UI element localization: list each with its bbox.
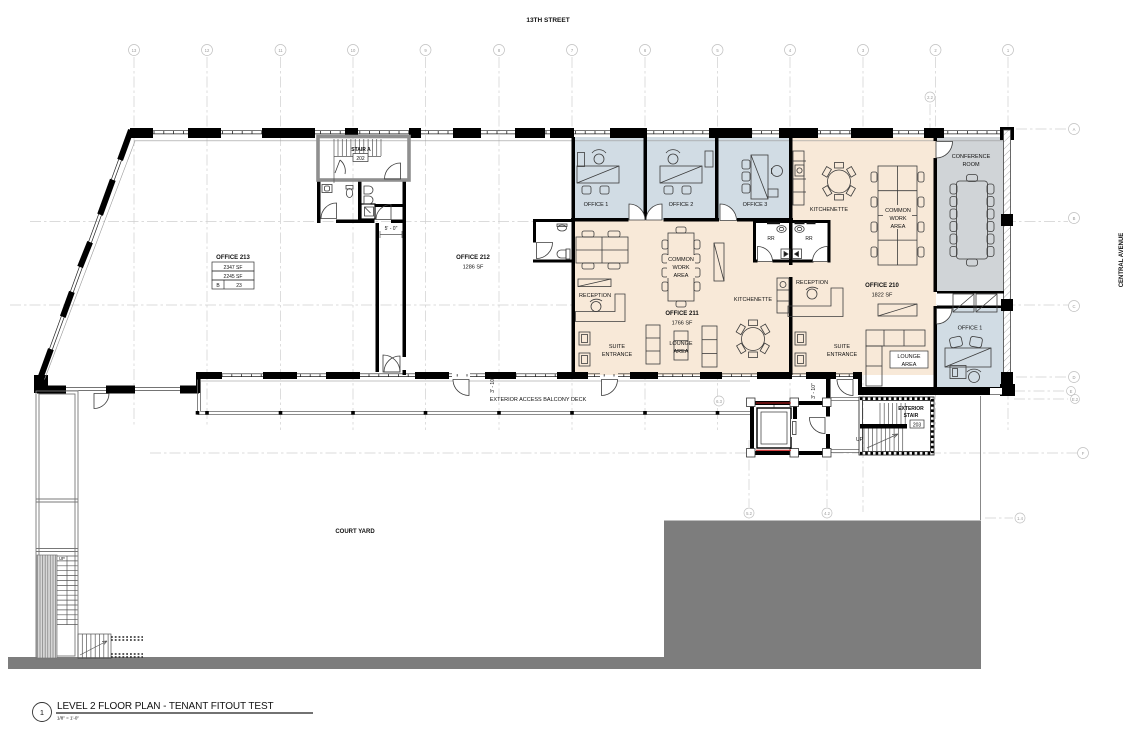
svg-text:3' - 10": 3' - 10" bbox=[811, 383, 817, 399]
svg-text:1766 SF: 1766 SF bbox=[672, 321, 693, 327]
svg-text:12: 12 bbox=[205, 48, 210, 53]
svg-text:STAIR: STAIR bbox=[904, 413, 919, 419]
svg-text:OFFICE 212: OFFICE 212 bbox=[456, 255, 490, 261]
svg-text:OFFICE 1: OFFICE 1 bbox=[958, 326, 983, 332]
svg-text:1/8" = 1'-0": 1/8" = 1'-0" bbox=[57, 716, 79, 721]
svg-text:OFFICE 213: OFFICE 213 bbox=[216, 255, 250, 261]
svg-text:6.3: 6.3 bbox=[716, 399, 722, 404]
svg-text:2.2: 2.2 bbox=[927, 95, 933, 100]
svg-text:EXTERIOR: EXTERIOR bbox=[898, 406, 924, 412]
svg-text:LOUNGE: LOUNGE bbox=[669, 341, 693, 347]
svg-text:COMMON: COMMON bbox=[668, 257, 694, 263]
svg-text:RECEPTION: RECEPTION bbox=[579, 293, 611, 299]
svg-text:23: 23 bbox=[236, 283, 242, 289]
svg-text:WORK: WORK bbox=[889, 216, 906, 222]
svg-text:EXTERIOR ACCESS BALCONY DECK: EXTERIOR ACCESS BALCONY DECK bbox=[490, 397, 587, 403]
svg-text:2347 SF: 2347 SF bbox=[224, 265, 243, 271]
svg-text:5.2: 5.2 bbox=[746, 511, 752, 516]
svg-text:STAIR A: STAIR A bbox=[351, 147, 371, 153]
svg-text:E: E bbox=[1070, 389, 1073, 394]
svg-text:D: D bbox=[1072, 375, 1075, 380]
svg-text:E.2: E.2 bbox=[1072, 397, 1079, 402]
svg-text:AREA: AREA bbox=[674, 349, 689, 355]
svg-text:WORK: WORK bbox=[672, 265, 689, 271]
svg-text:F: F bbox=[1082, 451, 1085, 456]
svg-text:203: 203 bbox=[913, 423, 922, 429]
svg-text:13: 13 bbox=[132, 48, 137, 53]
svg-text:UP: UP bbox=[59, 556, 65, 561]
svg-text:COMMON: COMMON bbox=[885, 208, 911, 214]
svg-text:4.2: 4.2 bbox=[824, 511, 830, 516]
svg-text:UP: UP bbox=[856, 437, 864, 443]
svg-text:LOUNGE: LOUNGE bbox=[897, 354, 921, 360]
svg-text:KITCHENETTE: KITCHENETTE bbox=[810, 207, 849, 213]
svg-text:3' - 10": 3' - 10" bbox=[490, 377, 496, 393]
svg-text:1.4: 1.4 bbox=[1017, 516, 1023, 521]
svg-text:ENTRANCE: ENTRANCE bbox=[602, 352, 633, 358]
svg-text:1286 SF: 1286 SF bbox=[463, 265, 484, 271]
svg-text:10: 10 bbox=[351, 48, 356, 53]
svg-text:ENTRANCE: ENTRANCE bbox=[827, 352, 858, 358]
svg-text:AREA: AREA bbox=[674, 273, 689, 279]
svg-text:OFFICE 211: OFFICE 211 bbox=[665, 311, 699, 317]
svg-text:11: 11 bbox=[278, 48, 283, 53]
svg-text:1822 SF: 1822 SF bbox=[872, 293, 893, 299]
svg-text:ROOM: ROOM bbox=[962, 162, 980, 168]
svg-text:13TH STREET: 13TH STREET bbox=[526, 17, 569, 24]
svg-text:2245 SF: 2245 SF bbox=[224, 274, 243, 280]
svg-text:OFFICE 2: OFFICE 2 bbox=[669, 202, 694, 208]
svg-text:CONFERENCE: CONFERENCE bbox=[952, 154, 991, 160]
svg-text:OFFICE 3: OFFICE 3 bbox=[743, 202, 768, 208]
svg-text:OFFICE 1: OFFICE 1 bbox=[584, 202, 609, 208]
svg-text:AREA: AREA bbox=[902, 362, 917, 368]
svg-text:AREA: AREA bbox=[891, 224, 906, 230]
svg-text:CENTRAL AVENUE: CENTRAL AVENUE bbox=[1119, 233, 1125, 288]
svg-text:LEVEL 2 FLOOR PLAN - TENANT FI: LEVEL 2 FLOOR PLAN - TENANT FITOUT TEST bbox=[57, 701, 274, 712]
svg-text:202: 202 bbox=[356, 156, 365, 162]
svg-text:OFFICE 210: OFFICE 210 bbox=[865, 283, 899, 289]
svg-text:KITCHENETTE: KITCHENETTE bbox=[734, 297, 773, 303]
svg-text:RECEPTION: RECEPTION bbox=[796, 280, 828, 286]
svg-text:RR: RR bbox=[805, 236, 813, 242]
svg-text:B: B bbox=[1073, 216, 1076, 221]
svg-text:A: A bbox=[1073, 127, 1076, 132]
svg-text:C: C bbox=[1072, 304, 1075, 309]
svg-text:RR: RR bbox=[767, 236, 775, 242]
svg-text:5' - 0": 5' - 0" bbox=[385, 226, 398, 232]
svg-text:SUITE: SUITE bbox=[834, 344, 851, 350]
svg-text:COURT YARD: COURT YARD bbox=[335, 529, 375, 535]
svg-text:1: 1 bbox=[40, 708, 44, 717]
svg-text:SUITE: SUITE bbox=[609, 344, 626, 350]
